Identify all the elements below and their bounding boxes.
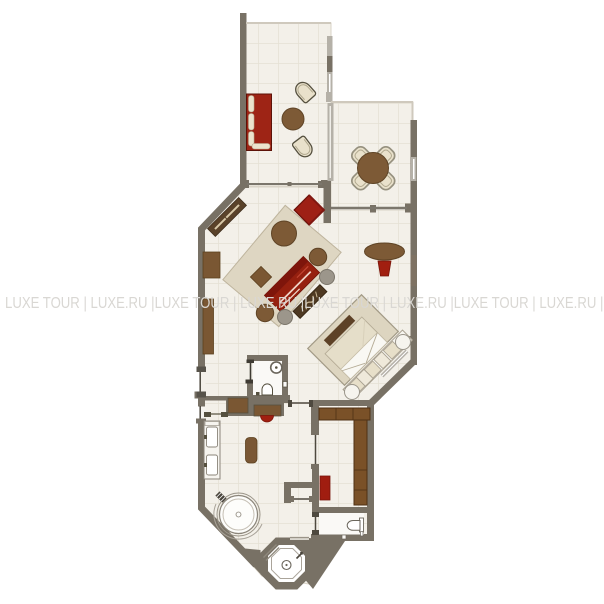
svg-text:LUXE TOUR | LUXE.RU |LUXE TOUR: LUXE TOUR | LUXE.RU |LUXE TOUR | LUXE.RU… bbox=[5, 295, 604, 312]
